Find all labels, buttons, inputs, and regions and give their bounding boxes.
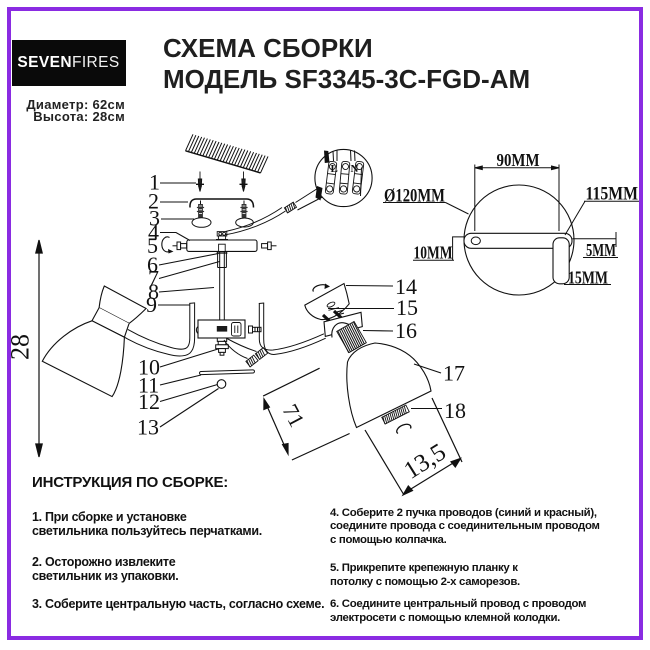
svg-text:28: 28 (6, 334, 35, 360)
svg-text:10MM: 10MM (414, 243, 453, 263)
svg-text:N: N (351, 163, 359, 175)
svg-text:90MM: 90MM (497, 150, 540, 170)
svg-text:15MM: 15MM (568, 268, 608, 288)
svg-text:12: 12 (138, 389, 160, 414)
svg-text:9: 9 (146, 292, 157, 317)
svg-text:15: 15 (396, 295, 418, 320)
svg-text:5MM: 5MM (586, 240, 616, 260)
svg-text:18: 18 (444, 398, 466, 423)
svg-text:13,5: 13,5 (399, 439, 450, 485)
svg-text:16: 16 (395, 318, 417, 343)
svg-text:71: 71 (277, 400, 309, 431)
svg-text:17: 17 (443, 361, 465, 386)
svg-text:13: 13 (137, 415, 159, 440)
svg-text:Ø120MM: Ø120MM (384, 186, 445, 207)
svg-text:L: L (331, 163, 338, 175)
